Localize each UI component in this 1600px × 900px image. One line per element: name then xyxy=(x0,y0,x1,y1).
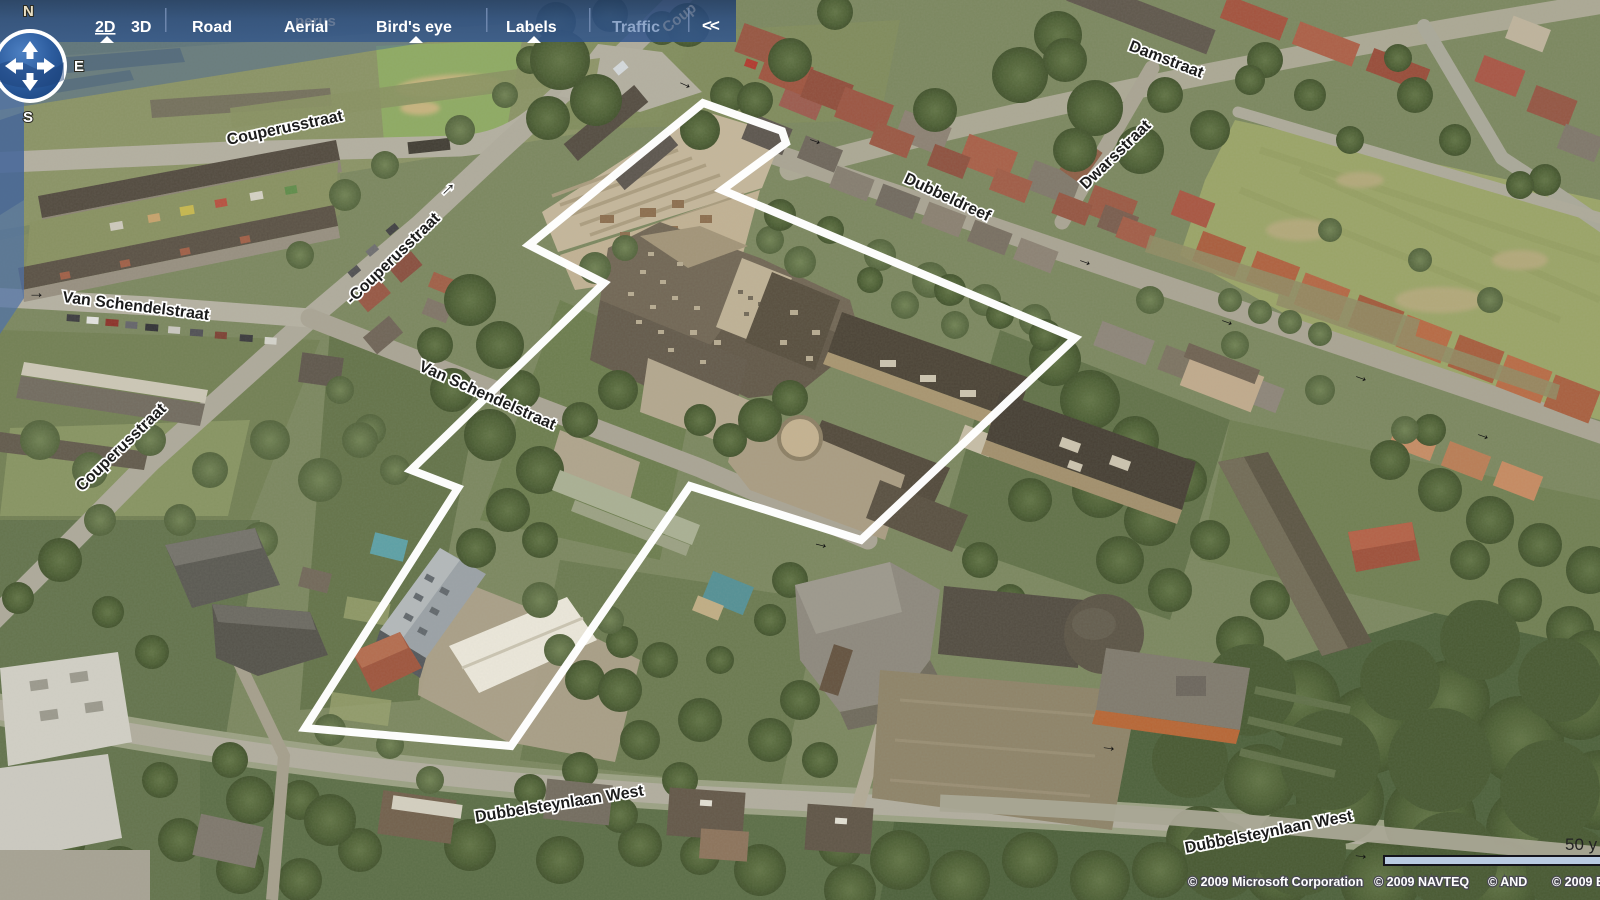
svg-text:© AND: © AND xyxy=(1488,875,1527,889)
svg-text:Aerial: Aerial xyxy=(284,19,328,36)
svg-text:© 2009 NAVTEQ: © 2009 NAVTEQ xyxy=(1374,875,1469,889)
svg-text:E: E xyxy=(74,58,84,75)
svg-text:<<: << xyxy=(702,16,720,35)
svg-text:S: S xyxy=(23,109,33,126)
svg-text:→: → xyxy=(1099,735,1118,756)
svg-text:Labels: Labels xyxy=(506,19,557,36)
svg-text:N: N xyxy=(23,3,34,20)
svg-text:50 y: 50 y xyxy=(1565,835,1598,854)
svg-text:Road: Road xyxy=(192,19,232,36)
svg-text:3D: 3D xyxy=(131,19,151,36)
svg-text:© 2009 E: © 2009 E xyxy=(1552,875,1600,889)
svg-text:Traffic: Traffic xyxy=(612,19,660,36)
svg-text:Bird's eye: Bird's eye xyxy=(376,19,452,36)
svg-text:→: → xyxy=(1351,843,1370,864)
svg-text:2D: 2D xyxy=(95,19,115,36)
svg-text:© 2009 Microsoft Corporation: © 2009 Microsoft Corporation xyxy=(1188,875,1363,889)
svg-text:→: → xyxy=(28,283,45,302)
